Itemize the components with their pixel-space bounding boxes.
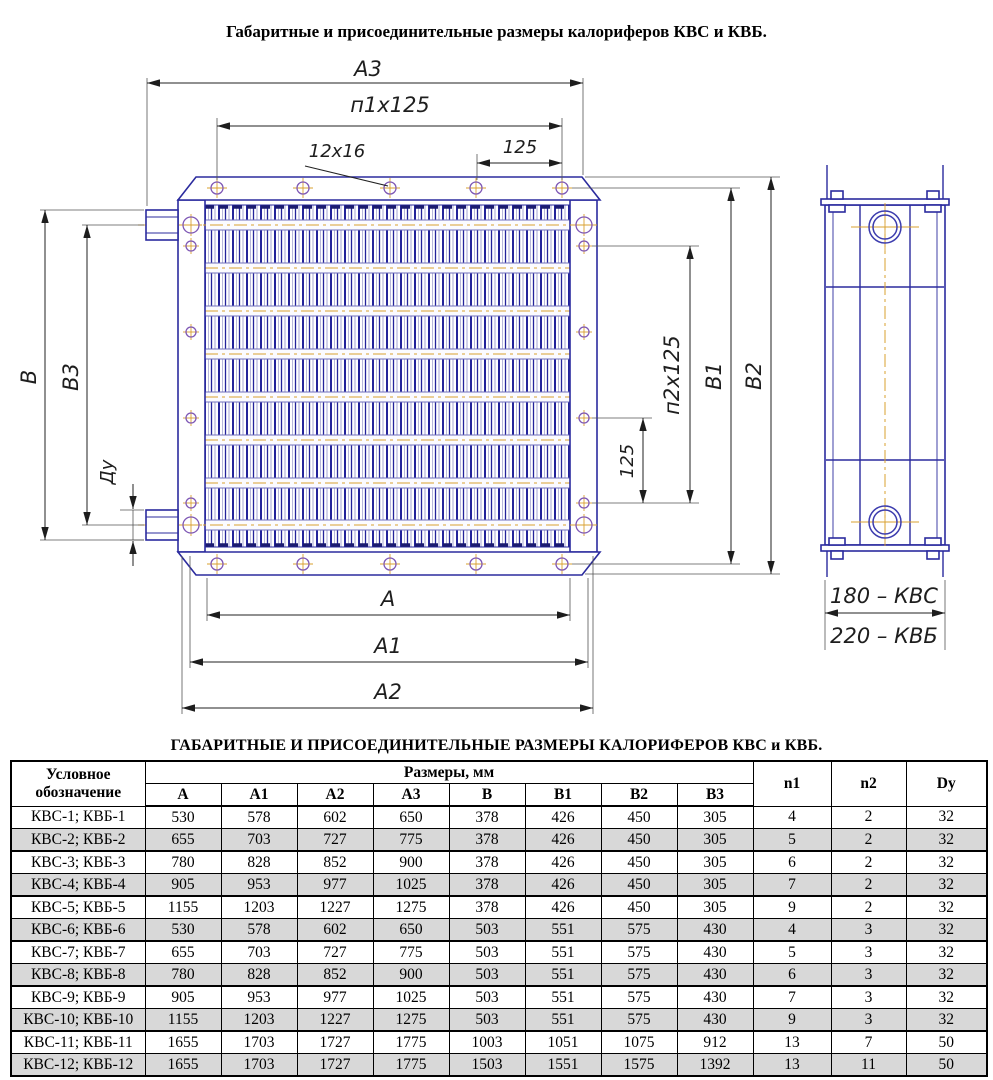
table-row: КВС-2; КВБ-26557037277753784264503055232: [11, 829, 987, 852]
dimension-value-cell: 727: [297, 829, 373, 852]
table-row: КВС-12; КВБ-1216551703172717751503155115…: [11, 1054, 987, 1077]
dimension-value-cell: 503: [449, 964, 525, 987]
dimension-value-cell: 828: [221, 964, 297, 987]
dimension-value-cell: 650: [373, 806, 449, 829]
dimension-value-cell: 3: [831, 964, 906, 987]
dim-label-b3: В3: [59, 363, 83, 391]
dimension-value-cell: 1655: [145, 1031, 221, 1054]
technical-drawing: А3 п1х125 12х16 125: [0, 55, 993, 737]
dimension-value-cell: 2: [831, 896, 906, 919]
dimension-value-cell: 3: [831, 1009, 906, 1032]
dimension-value-cell: 2: [831, 806, 906, 829]
dimension-value-cell: 1775: [373, 1031, 449, 1054]
dimension-value-cell: 305: [677, 851, 753, 874]
table-row: КВС-6; КВБ-65305786026505035515754304332: [11, 919, 987, 942]
dimension-value-cell: 430: [677, 964, 753, 987]
dim-label-125-top: 125: [503, 137, 537, 158]
dimension-value-cell: 828: [221, 851, 297, 874]
dimension-value-cell: 430: [677, 941, 753, 964]
table-row: КВС-3; КВБ-37808288529003784264503056232: [11, 851, 987, 874]
dim-label-125-right: 125: [617, 444, 638, 478]
table-row: КВС-5; КВБ-51155120312271275378426450305…: [11, 896, 987, 919]
dimension-value-cell: 953: [221, 874, 297, 897]
dimension-value-cell: 426: [525, 896, 601, 919]
dimension-value-cell: 1227: [297, 896, 373, 919]
dimension-value-cell: 1155: [145, 1009, 221, 1032]
depth-kvb-label: 220 – КВБ: [830, 624, 938, 648]
dimension-value-cell: 1155: [145, 896, 221, 919]
row-designation: КВС-5; КВБ-5: [11, 896, 145, 919]
dimension-value-cell: 900: [373, 964, 449, 987]
dim-label-a3: А3: [352, 57, 382, 81]
dim-depth: 180 – КВС 220 – КВБ: [825, 580, 945, 650]
col-header-b1: В1: [525, 784, 601, 807]
dimension-value-cell: 426: [525, 829, 601, 852]
dimension-value-cell: 11: [831, 1054, 906, 1077]
dimension-value-cell: 655: [145, 941, 221, 964]
dimension-value-cell: 503: [449, 1009, 525, 1032]
left-side-frame: [178, 200, 205, 552]
dimension-value-cell: 575: [601, 1009, 677, 1032]
dimension-value-cell: 775: [373, 941, 449, 964]
dimension-value-cell: 378: [449, 896, 525, 919]
dimension-value-cell: 430: [677, 986, 753, 1009]
dimension-value-cell: 450: [601, 806, 677, 829]
dimension-value-cell: 9: [753, 896, 831, 919]
dimension-value-cell: 450: [601, 829, 677, 852]
dimension-value-cell: 32: [906, 1009, 987, 1032]
dimension-value-cell: 578: [221, 919, 297, 942]
dimension-value-cell: 905: [145, 874, 221, 897]
col-header-b: В: [449, 784, 525, 807]
dimension-value-cell: 1703: [221, 1054, 297, 1077]
dimension-value-cell: 32: [906, 829, 987, 852]
dimension-value-cell: 503: [449, 986, 525, 1009]
dimension-value-cell: 1051: [525, 1031, 601, 1054]
dimension-value-cell: 7: [753, 986, 831, 1009]
dim-label-a2: А2: [372, 680, 402, 704]
dimension-value-cell: 503: [449, 941, 525, 964]
dimension-value-cell: 775: [373, 829, 449, 852]
dimension-value-cell: 1275: [373, 896, 449, 919]
dimension-value-cell: 378: [449, 829, 525, 852]
dimension-value-cell: 32: [906, 896, 987, 919]
dimension-value-cell: 450: [601, 851, 677, 874]
dimension-value-cell: 1227: [297, 1009, 373, 1032]
dimension-value-cell: 305: [677, 874, 753, 897]
dimension-value-cell: 450: [601, 896, 677, 919]
table-title: ГАБАРИТНЫЕ И ПРИСОЕДИНИТЕЛЬНЫЕ РАЗМЕРЫ К…: [0, 737, 993, 755]
dimension-value-cell: 780: [145, 964, 221, 987]
dim-a: А: [207, 578, 570, 621]
col-header-a1: А1: [221, 784, 297, 807]
right-side-frame: [570, 200, 597, 552]
dimension-value-cell: 2: [831, 829, 906, 852]
dimension-value-cell: 575: [601, 919, 677, 942]
col-header-b3: В3: [677, 784, 753, 807]
row-designation: КВС-9; КВБ-9: [11, 986, 145, 1009]
dimension-value-cell: 905: [145, 986, 221, 1009]
dimension-value-cell: 530: [145, 806, 221, 829]
dimension-value-cell: 2: [831, 874, 906, 897]
col-header-b2: В2: [601, 784, 677, 807]
dimension-value-cell: 602: [297, 806, 373, 829]
dimension-value-cell: 3: [831, 986, 906, 1009]
dimension-value-cell: 551: [525, 1009, 601, 1032]
side-view: 180 – КВС 220 – КВБ: [821, 165, 949, 650]
dimension-value-cell: 1551: [525, 1054, 601, 1077]
dimension-value-cell: 378: [449, 851, 525, 874]
dimension-value-cell: 3: [831, 919, 906, 942]
dimension-value-cell: 655: [145, 829, 221, 852]
dimension-value-cell: 1203: [221, 896, 297, 919]
dimension-value-cell: 900: [373, 851, 449, 874]
dimension-value-cell: 852: [297, 851, 373, 874]
col-header-designation: Условное обозначение: [11, 761, 145, 806]
dim-label-n1x125: п1х125: [350, 93, 430, 117]
dimension-value-cell: 430: [677, 919, 753, 942]
front-view: [138, 177, 600, 575]
col-header-a: А: [145, 784, 221, 807]
dimension-value-cell: 703: [221, 941, 297, 964]
table-row: КВС-8; КВБ-87808288529005035515754306332: [11, 964, 987, 987]
dim-label-12x16: 12х16: [309, 141, 365, 162]
table-row: КВС-1; КВБ-15305786026503784264503054232: [11, 806, 987, 829]
dimension-value-cell: 305: [677, 829, 753, 852]
page: Габаритные и присоединительные размеры к…: [0, 0, 993, 1080]
dimension-value-cell: 530: [145, 919, 221, 942]
bottom-flange: [178, 552, 600, 575]
tube-row: [205, 306, 570, 316]
top-flange: [178, 177, 600, 200]
dim-label-b1: В1: [702, 362, 726, 390]
col-group-sizes: Размеры, мм: [145, 761, 753, 784]
dimension-value-cell: 32: [906, 941, 987, 964]
dimensions-table: Условное обозначение Размеры, мм n1 n2 D…: [10, 760, 988, 1077]
row-designation: КВС-10; КВБ-10: [11, 1009, 145, 1032]
dimension-value-cell: 1727: [297, 1031, 373, 1054]
row-designation: КВС-4; КВБ-4: [11, 874, 145, 897]
dimension-value-cell: 426: [525, 851, 601, 874]
dimension-value-cell: 5: [753, 941, 831, 964]
dimension-value-cell: 953: [221, 986, 297, 1009]
dimension-value-cell: 1655: [145, 1054, 221, 1077]
dimension-value-cell: 378: [449, 874, 525, 897]
dimension-value-cell: 602: [297, 919, 373, 942]
row-designation: КВС-2; КВБ-2: [11, 829, 145, 852]
dim-125-top: 125: [477, 137, 562, 180]
col-header-a3: А3: [373, 784, 449, 807]
dimension-value-cell: 50: [906, 1031, 987, 1054]
dimension-value-cell: 13: [753, 1054, 831, 1077]
col-header-n2: n2: [831, 761, 906, 806]
pipe-stub-top: [146, 210, 178, 240]
dimension-value-cell: 578: [221, 806, 297, 829]
dim-du: Ду: [97, 459, 144, 566]
drawing-title: Габаритные и присоединительные размеры к…: [0, 22, 993, 42]
dimension-value-cell: 7: [753, 874, 831, 897]
dimension-value-cell: 50: [906, 1054, 987, 1077]
dimension-value-cell: 1703: [221, 1031, 297, 1054]
dimension-value-cell: 977: [297, 874, 373, 897]
heater-core: [205, 205, 570, 547]
dim-label-a1: А1: [372, 634, 402, 658]
dimension-value-cell: 551: [525, 941, 601, 964]
dimension-value-cell: 551: [525, 986, 601, 1009]
dimension-value-cell: 4: [753, 919, 831, 942]
tube-row: [205, 435, 570, 445]
dimension-value-cell: 6: [753, 851, 831, 874]
dimension-value-cell: 575: [601, 941, 677, 964]
dimension-value-cell: 7: [831, 1031, 906, 1054]
dimension-value-cell: 32: [906, 986, 987, 1009]
dimension-value-cell: 426: [525, 874, 601, 897]
dimension-value-cell: 1727: [297, 1054, 373, 1077]
pipe-stub-bottom: [146, 510, 178, 540]
row-designation: КВС-8; КВБ-8: [11, 964, 145, 987]
dimension-value-cell: 1075: [601, 1031, 677, 1054]
dim-label-b: В: [17, 370, 41, 384]
table-row: КВС-7; КВБ-76557037277755035515754305332: [11, 941, 987, 964]
table-row: КВС-10; КВБ-1011551203122712755035515754…: [11, 1009, 987, 1032]
dimension-value-cell: 575: [601, 964, 677, 987]
dimension-value-cell: 6: [753, 964, 831, 987]
dimension-value-cell: 32: [906, 964, 987, 987]
row-designation: КВС-6; КВБ-6: [11, 919, 145, 942]
dimension-value-cell: 575: [601, 986, 677, 1009]
dimension-value-cell: 305: [677, 806, 753, 829]
dimension-value-cell: 378: [449, 806, 525, 829]
tube-row: [205, 478, 570, 488]
dimension-value-cell: 5: [753, 829, 831, 852]
dimension-value-cell: 1025: [373, 874, 449, 897]
dimension-value-cell: 1203: [221, 1009, 297, 1032]
dim-label-du: Ду: [97, 459, 118, 485]
dimension-value-cell: 727: [297, 941, 373, 964]
dimension-value-cell: 977: [297, 986, 373, 1009]
depth-kvs-label: 180 – КВС: [830, 584, 938, 608]
dimension-value-cell: 32: [906, 806, 987, 829]
row-designation: КВС-3; КВБ-3: [11, 851, 145, 874]
dimension-value-cell: 852: [297, 964, 373, 987]
dimension-value-cell: 4: [753, 806, 831, 829]
dim-n2x125: п2х125: [592, 246, 699, 503]
dimension-value-cell: 1392: [677, 1054, 753, 1077]
dimension-value-cell: 1003: [449, 1031, 525, 1054]
dimension-value-cell: 32: [906, 851, 987, 874]
side-body: [825, 205, 945, 545]
dimension-value-cell: 450: [601, 874, 677, 897]
table-row: КВС-11; КВБ-1116551703172717751003105110…: [11, 1031, 987, 1054]
dimension-value-cell: 503: [449, 919, 525, 942]
dimension-value-cell: 13: [753, 1031, 831, 1054]
row-designation: КВС-1; КВБ-1: [11, 806, 145, 829]
dimension-value-cell: 305: [677, 896, 753, 919]
col-header-n1: n1: [753, 761, 831, 806]
dimension-value-cell: 912: [677, 1031, 753, 1054]
dimension-value-cell: 1503: [449, 1054, 525, 1077]
dim-125-right: 125: [592, 418, 652, 503]
dim-label-a: А: [379, 587, 395, 611]
dimension-value-cell: 426: [525, 806, 601, 829]
dimension-value-cell: 1575: [601, 1054, 677, 1077]
dimension-value-cell: 1275: [373, 1009, 449, 1032]
row-designation: КВС-7; КВБ-7: [11, 941, 145, 964]
dimension-value-cell: 32: [906, 919, 987, 942]
table-row: КВС-9; КВБ-99059539771025503551575430733…: [11, 986, 987, 1009]
dimension-value-cell: 430: [677, 1009, 753, 1032]
dimension-value-cell: 650: [373, 919, 449, 942]
dimension-value-cell: 703: [221, 829, 297, 852]
tube-row: [205, 392, 570, 402]
row-designation: КВС-12; КВБ-12: [11, 1054, 145, 1077]
dimension-value-cell: 551: [525, 919, 601, 942]
tube-row: [205, 349, 570, 359]
dimension-value-cell: 551: [525, 964, 601, 987]
tube-row: [205, 263, 570, 273]
dimension-value-cell: 32: [906, 874, 987, 897]
dimension-value-cell: 9: [753, 1009, 831, 1032]
dimension-value-cell: 1775: [373, 1054, 449, 1077]
col-header-a2: А2: [297, 784, 373, 807]
table-row: КВС-4; КВБ-49059539771025378426450305723…: [11, 874, 987, 897]
dim-label-n2x125: п2х125: [660, 335, 684, 415]
row-designation: КВС-11; КВБ-11: [11, 1031, 145, 1054]
dimension-value-cell: 2: [831, 851, 906, 874]
table-body: КВС-1; КВБ-15305786026503784264503054232…: [11, 806, 987, 1076]
dimension-value-cell: 780: [145, 851, 221, 874]
dimension-value-cell: 3: [831, 941, 906, 964]
dimension-value-cell: 1025: [373, 986, 449, 1009]
dim-label-b2: В2: [742, 362, 766, 390]
col-header-dy: Dy: [906, 761, 987, 806]
